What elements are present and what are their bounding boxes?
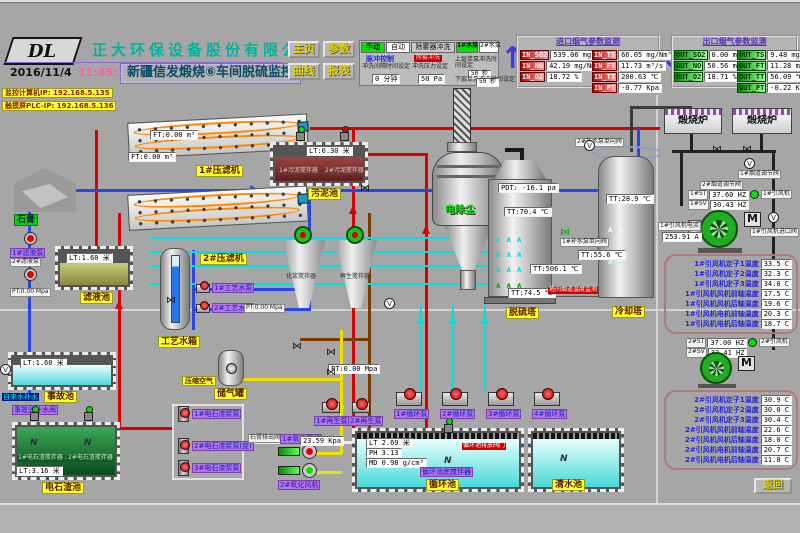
interval-set-value[interactable]: 0 分钟: [372, 74, 400, 84]
fan1-temp-label: 1#引风机定子1温度: [694, 260, 759, 268]
fan1-temp-label: 1#引风机定子2温度: [694, 270, 759, 278]
gas-value: 66.05 mg/Nm³: [618, 50, 675, 60]
fan1-st-tag: 1#ST: [688, 190, 708, 200]
filtrate-pump2-label: 2#滤液泵: [10, 258, 41, 267]
furnace-2: 煅烧炉: [732, 108, 792, 134]
gas-tag: OUT_NO: [674, 61, 703, 71]
gas-tag: OUT_TT: [737, 72, 766, 82]
flow-arrow: [422, 225, 430, 234]
clear-water-pool-label: 清水池: [552, 479, 585, 491]
flow-meter-1: FT:0.00 m³: [150, 130, 198, 140]
gas-tag: OUT_PT: [737, 83, 766, 93]
oxidation-fan2-label: 2#氧化风机: [278, 480, 320, 490]
fan1-temp-value: 20.3 C: [761, 309, 792, 319]
regen-pump1[interactable]: [322, 402, 340, 413]
compressed-air-label: 压缩空气: [182, 376, 216, 386]
circ-pump1-label: 1#循环泵: [394, 409, 429, 419]
esp-stack: [453, 88, 471, 144]
spray-level-icon: ∧∧∧: [495, 265, 527, 274]
process-water-pressure: PT:0.00 Mpa: [244, 304, 285, 313]
fan2-motor-box: M: [738, 356, 755, 371]
filtrate-pump2[interactable]: [24, 268, 37, 281]
pressure-set-label: 冲洗压力设定: [412, 64, 448, 71]
damper2-label: 2#烟道调节阀: [700, 181, 743, 190]
duct-note-label: 塔间烟道温度监测: [548, 287, 598, 294]
gas-tag: IN_O2: [520, 72, 545, 82]
damper-valve-icon[interactable]: ⋈: [712, 145, 722, 155]
spray-level-icon: ∧∧: [607, 225, 628, 234]
circ-pump2-label: 2#循环泵: [440, 409, 475, 419]
fan1-sv-value: 30.43 HZ: [710, 200, 750, 210]
furnace-1: 煅烧炉: [664, 108, 722, 134]
gas-value: 18.72 %: [546, 72, 582, 82]
agitator-icon: N: [84, 438, 92, 448]
manual-mode-button[interactable]: 手动: [361, 42, 385, 53]
valve-icon[interactable]: ⋈: [292, 342, 302, 352]
circ-level-value: LT 2.69 米: [366, 438, 413, 448]
damper1-label: 1#烟道调节阀: [738, 170, 781, 179]
fan1-base: [698, 248, 742, 253]
fan1-temp-label: 1#引风机风机前轴温度: [685, 290, 759, 298]
cooling-tower-label: 冷却塔: [612, 306, 645, 318]
pressure-gauge-icon: V: [768, 212, 779, 223]
gas-value: -0.77 Kpa: [618, 83, 662, 93]
sludge-level: LT:0.30 米: [306, 146, 353, 156]
page-title: 新疆信发煅烧⑥车间脱硫监控: [120, 63, 301, 84]
mixer-motor: [296, 132, 305, 141]
filtrate-pump1[interactable]: [24, 232, 37, 245]
oxidation-fan2-bar: [278, 466, 300, 475]
gas-value: 11.73 m³/s: [618, 61, 666, 71]
fan1-inlet-valve-label: 1#引风机进口阀: [750, 228, 799, 237]
valve-icon[interactable]: ⋈: [326, 368, 336, 378]
pipe-red: [310, 127, 660, 130]
pressure-gauge-icon: V: [0, 364, 11, 375]
duct-dark: [672, 150, 776, 153]
pulse-control-label: 脉冲控制: [366, 55, 394, 63]
fan2-temp-label: 2#引风机电机后轴温度: [685, 456, 759, 464]
circ-pump-3[interactable]: [488, 392, 514, 406]
fgd-tower-body: ∧∧∧ ∧∧∧ ∧∧∧ ∧∧∧: [488, 179, 552, 297]
plc-ip-label: 触摸屏PLC-IP: 192.168.5.136: [2, 101, 116, 111]
accident-level: LT:1.60 米: [20, 358, 67, 368]
fan2-temp-label: 2#引风机定子2温度: [694, 406, 759, 414]
gas-tag: OUT_O2: [674, 72, 703, 82]
flow-meter-2: FT:0.00 m³: [128, 152, 176, 162]
slurry-pump-1[interactable]: [178, 406, 189, 422]
gas-tag: IN_PT: [592, 83, 617, 93]
back-button[interactable]: 返回: [754, 478, 792, 494]
date-text: 2016/11/4: [10, 67, 72, 80]
fan2-temp-label: 2#引风机风机后轴温度: [685, 436, 759, 444]
gas-value: 56.09 ℃: [767, 72, 800, 82]
gas-value: 11.28 m³/s: [767, 61, 800, 71]
oxidation-fan1-bar: [278, 447, 300, 456]
sludge-mixer2-label: 2#污泥搅拌器: [324, 168, 365, 175]
fan1-temp-label: 1#引风机电机前轴温度: [685, 310, 759, 318]
fan2-temp-panel: 2#引风机定子1温度30.9 C 2#引风机定子2温度30.0 C 2#引风机定…: [664, 390, 798, 470]
gas-value: 18.71 %: [704, 72, 740, 82]
fan1-temp-value: 17.5 C: [761, 289, 792, 299]
logo-text: DL: [28, 41, 56, 62]
fan2-temp-value: 20.7 C: [761, 445, 792, 455]
fan1-status: 1#引风机: [750, 190, 792, 199]
fan1-temp-label: 1#引风机电机后轴温度: [685, 320, 759, 328]
cooling-tt-mid-value: TT:55.6 ℃: [578, 250, 626, 260]
flow-arrow: [115, 300, 123, 309]
fan2-temp-value: 30.4 C: [761, 415, 792, 425]
fgd-pdt-value: PDT: -16.1 pa: [498, 183, 559, 193]
mixer-motor: [30, 412, 39, 421]
fan1-temp-label: 1#引风机风机后轴温度: [685, 300, 759, 308]
circ-pump-4[interactable]: [534, 392, 560, 406]
process-water-tank-label: 工艺水箱: [158, 336, 200, 348]
induced-draft-fan-2[interactable]: [700, 352, 732, 384]
fan2-temp-label: 2#引风机电机前轴温度: [685, 446, 759, 454]
circulation-pool-label: 循环池: [426, 479, 459, 491]
fan1-label: 1#引风机: [761, 190, 792, 199]
carbide-mixer1-label: 1#电石渣搅拌器: [17, 455, 64, 462]
outlet-gas-panel: 出口烟气参数监测 OUT_SO20.00 mg/Nm³ OUT_NO50.56 …: [671, 35, 798, 88]
company-name: 正大环保设备股份有限公司: [92, 42, 320, 59]
circ-ph-value: PH 3.13: [366, 448, 402, 458]
fan2-temp-label: 2#引风机定子3温度: [694, 416, 759, 424]
gas-value: -0.22 Kpa: [767, 83, 800, 93]
check-valve1-label: 1#补水泵单向阀: [560, 238, 609, 247]
fan2-st-tag: 2#ST: [686, 338, 706, 348]
process-water-tank: [160, 248, 190, 330]
furnace2-label: 煅烧炉: [747, 115, 777, 126]
regen-pump2-label: 2#再生泵: [348, 416, 383, 426]
lower-wash-value[interactable]: 50 秒: [476, 78, 499, 87]
circ-mixer-label: 循环池底搅拌器: [420, 467, 473, 477]
pipe-red: [425, 153, 428, 430]
pc-ip-label: 监控计算机IP: 192.168.5.135: [2, 88, 113, 98]
accident-pool-label: 事故池: [44, 391, 77, 403]
gas-value: 9.48 mg/Nm³: [767, 50, 800, 60]
fan1-motor-box: M: [744, 212, 761, 227]
mixer-motor[interactable]: [346, 226, 364, 244]
fan2-label: 2#引风机: [759, 338, 790, 347]
circ-pump-2[interactable]: [442, 392, 468, 406]
flow-arrow: [481, 315, 489, 324]
kpa-value: 23.59 Kpa: [300, 436, 344, 446]
gypsum-label: 石膏: [14, 214, 38, 226]
oxidation-fan-2[interactable]: [302, 463, 317, 478]
fan1-amp-label: 1#引风机电流: [658, 222, 701, 231]
gas-value: 200.63 ℃: [618, 72, 661, 82]
circ-pump3-label: 3#循环泵: [486, 409, 521, 419]
circ-pump4-label: 4#循环泵: [532, 409, 567, 419]
fan1-amp-value: 253.91 A: [662, 232, 702, 242]
flow-arrow: [417, 315, 425, 324]
water-pump1-button[interactable]: 1#水泵: [456, 42, 478, 53]
damper-valve-icon[interactable]: ⋈: [742, 145, 752, 155]
slurry-pump3-label: 3#电石渣浆泵: [192, 463, 241, 473]
circ-density-value: MD 0.98 g/cm³: [366, 458, 427, 468]
gypsum-hopper: [14, 168, 76, 212]
filter2-label: 2#压滤机: [200, 253, 247, 265]
interval-set-label: 冲洗间隔时间设定: [362, 64, 410, 71]
fgd-tower-label: 脱硫塔: [506, 307, 539, 319]
auto-mode-button[interactable]: 自动: [386, 42, 410, 53]
gas-tag: IN_TS: [592, 50, 617, 60]
fgd-tower-top: [494, 160, 546, 179]
regen-pump2[interactable]: [352, 402, 370, 413]
level-gauge: [171, 255, 180, 323]
fan2-status: 2#引风机: [748, 338, 790, 347]
filtrate-pump1-label: 1#滤液泵: [10, 248, 45, 258]
pipe-red: [118, 427, 174, 430]
esp-collar: [447, 142, 477, 152]
pressure-gauge-icon: V: [384, 298, 395, 309]
fan1-st-row: 1#ST 37.60 HZ: [688, 190, 749, 200]
water-pump2-button[interactable]: 2#水泵: [479, 42, 499, 53]
fan2-temp-value: 30.0 C: [761, 405, 792, 415]
fan1-temp-value: 34.0 C: [761, 279, 792, 289]
slurry-pump2-label: 2#电石渣浆泵(变): [192, 441, 254, 451]
furnace1-label: 煅烧炉: [678, 115, 708, 126]
carbide-pool-label: 电石渣池: [42, 482, 84, 494]
fan2-temp-value: 18.0 C: [761, 435, 792, 445]
air-receiver: [218, 350, 244, 386]
duct-tt-value: TT:506.1 ℃: [530, 264, 582, 274]
fan2-temp-value: 11.8 C: [761, 455, 792, 465]
flow-arrow: [349, 205, 357, 214]
gas-tag: IN_TT: [592, 72, 617, 82]
pressure-gauge-icon: V: [584, 140, 595, 151]
fan2-base: [698, 384, 736, 388]
cooling-tt-top-value: TT:28.9 ℃: [606, 194, 654, 204]
fan2-st-row: 2#ST 37.00 HZ: [686, 338, 747, 348]
filter1-label: 1#压滤机: [196, 165, 243, 177]
air-receiver-label: 储气罐: [214, 388, 247, 400]
pressure-set-value[interactable]: 50 Pa: [418, 74, 445, 84]
mixer-motor: [340, 132, 349, 141]
gas-tag: OUT_SO2: [674, 50, 708, 60]
fan1-st-value: 37.60 HZ: [709, 190, 749, 200]
fan1-temp-value: 33.5 C: [761, 259, 792, 269]
gas-tag: IN_SO2: [520, 50, 549, 60]
spray-level-icon: ∧∧∧: [495, 250, 527, 259]
demister-wash-button[interactable]: 除雾器冲洗: [411, 42, 455, 53]
circ-pump-1[interactable]: [396, 392, 422, 406]
spray-level-icon: ∧∧∧: [495, 235, 527, 244]
circ-drain-label: 循环池排放阀门: [462, 443, 506, 450]
esp-outlet: [460, 270, 476, 290]
regen-mixer-label: 再生搅拌器: [340, 274, 370, 281]
pressure-gauge-icon: V: [744, 158, 755, 169]
gas-tag: IN_NO: [520, 61, 545, 71]
upper-wash-label: 上层单泵冲洗时间设定: [455, 57, 499, 70]
flow-arrow: [449, 315, 457, 324]
check-valve2-label: 2#补水泵单向阀: [575, 138, 624, 147]
sludge-mixer1-label: 1#污泥搅拌器: [278, 168, 319, 175]
outlet-panel-title: 出口烟气参数监测: [673, 37, 796, 46]
agitator-icon: N: [444, 456, 452, 466]
nav-curve-button[interactable]: 曲线: [288, 63, 320, 80]
fgd-tower-base: [484, 297, 556, 304]
agitator-icon: N: [560, 454, 568, 464]
fan1-temp-value: 19.6 C: [761, 299, 792, 309]
slurry-pump1-label: 1#电石渣浆泵: [192, 409, 241, 419]
fan1-temp-panel: 1#引风机定子1温度33.5 C 1#引风机定子2温度32.3 C 1#引风机定…: [664, 254, 798, 334]
agitator-icon: N: [30, 438, 38, 448]
nav-report-button[interactable]: 报表: [323, 63, 355, 80]
makeup-water-label: 自来水补水: [2, 393, 39, 401]
fan1-temp-value: 32.3 C: [761, 269, 792, 279]
valve-icon[interactable]: ⋈: [326, 348, 336, 358]
wash-control-panel: 手动 自动 除雾器冲洗 1#水泵 2#水泵 脉冲控制 冲洗间隔时间设定 0 分钟…: [359, 40, 499, 86]
valve-icon[interactable]: ⋈: [166, 296, 176, 306]
fan2-st-value: 37.00 HZ: [707, 338, 747, 348]
valve-icon[interactable]: ⋈: [560, 228, 570, 238]
company-logo: DL: [3, 37, 82, 65]
process-water-pump1[interactable]: [196, 284, 210, 293]
flush-mode-label: 除雾冲洗: [414, 55, 442, 62]
oxidation-fan-1[interactable]: [302, 444, 317, 459]
fan2-temp-label: 2#引风机风机前轴温度: [685, 426, 759, 434]
pipe-yellow: [316, 452, 342, 455]
esp-cone: [444, 226, 492, 270]
valve-icon[interactable]: ⋈: [360, 184, 370, 194]
pipe-yellow: [240, 378, 342, 381]
filtrate-level: LT:1.60 米: [66, 253, 113, 263]
fan1-temp-label: 1#引风机定子3温度: [694, 280, 759, 288]
carbide-level: LT:3.16 米: [16, 466, 63, 476]
mixer-motor[interactable]: [294, 226, 312, 244]
nav-home-button[interactable]: 主页: [288, 41, 320, 58]
divider: [0, 0, 800, 2]
mixer-motor: [444, 424, 453, 433]
gas-tag: IN_FT: [592, 61, 617, 71]
carbide-mixer2-label: 2#电石渣搅拌器: [67, 455, 114, 462]
duct-dark: [680, 150, 683, 206]
scada-screen: DL 正大环保设备股份有限公司 2016/11/4 11:45:10 新疆信发煅…: [0, 0, 800, 533]
fan2-temp-label: 2#引风机定子1温度: [694, 396, 759, 404]
pipe-yellow: [316, 471, 342, 474]
nav-params-button[interactable]: 参数: [323, 41, 355, 58]
inlet-panel-title: 进口烟气参数监测: [518, 37, 658, 46]
induced-draft-fan-1[interactable]: [700, 210, 738, 248]
process-water-pump2[interactable]: [196, 304, 210, 313]
process-water-pump1-label: 1#工艺水泵: [212, 283, 254, 293]
fan1-sv-tag: 1#SV: [688, 200, 709, 210]
slurry-pump-3[interactable]: [178, 460, 189, 476]
slurry-mixer-label: 化浆搅拌器: [286, 274, 316, 281]
filtrate-pressure: PT:0.00 Mpa: [10, 288, 51, 297]
inlet-gas-panel: 进口烟气参数监测 IN_SO2539.06 mg/Nm³ IN_NO42.19 …: [516, 35, 660, 88]
pipe-brown: [300, 338, 368, 341]
fan1-sv-row: 1#SV 30.43 HZ: [688, 200, 749, 210]
fan1-temp-value: 18.7 C: [761, 319, 792, 329]
outlet-right-col: OUT_TS9.48 mg/Nm³ OUT_FT11.28 m³/s OUT_T…: [737, 50, 800, 94]
sludge-pool-label: 污泥池: [308, 188, 341, 200]
fan2-temp-value: 22.6 C: [761, 425, 792, 435]
regen-pump1-label: 1#再生泵: [314, 416, 349, 426]
footer-strip: [0, 505, 800, 533]
slurry-pump-2[interactable]: [178, 438, 189, 454]
port-icon: [226, 363, 237, 374]
inlet-right-col: IN_TS66.05 mg/Nm³ IN_FT11.73 m³/s IN_TT2…: [592, 50, 675, 94]
mixer-motor: [84, 412, 93, 421]
filtrate-pool-label: 滤液池: [80, 292, 113, 304]
gas-tag: OUT_FT: [737, 61, 766, 71]
esp-label: 电除尘: [445, 205, 475, 217]
gas-tag: OUT_TS: [737, 50, 766, 60]
fgd-tt-mid-value: TT:70.4 ℃: [504, 207, 552, 217]
cooling-tower-body: ∧∧ ∧∧: [598, 156, 654, 298]
gypsum-discharge-valve-label: 石膏排出阀: [248, 434, 282, 443]
fan2-temp-value: 30.9 C: [761, 395, 792, 405]
